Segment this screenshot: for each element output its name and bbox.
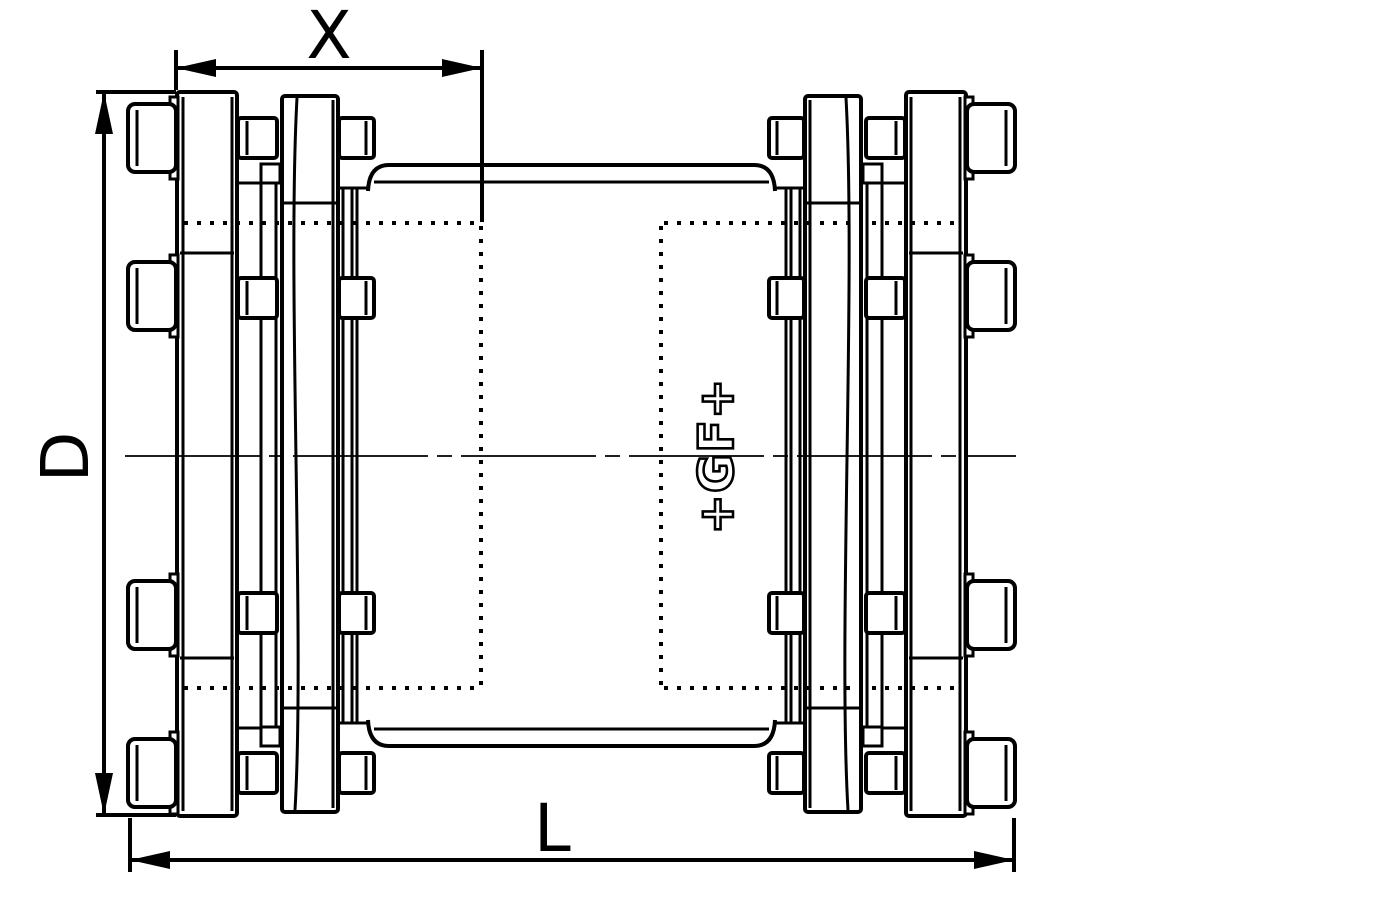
flange-assembly-right (769, 92, 1015, 816)
dimension-x-label: X (306, 0, 351, 74)
arrowhead-up (95, 92, 113, 134)
arrowhead-left (130, 851, 170, 869)
technical-drawing-canvas: X D L +GF+ (0, 0, 1400, 900)
dimension-d: D (27, 92, 176, 815)
arrowhead-down (95, 773, 113, 815)
arrowhead-right (974, 851, 1014, 869)
inner-flange (282, 96, 338, 812)
arrowhead-left (176, 59, 216, 77)
pipe-coupling-drawing: X D L +GF+ (0, 0, 1400, 900)
outer-flange (177, 92, 237, 816)
dimension-l-label: L (534, 790, 571, 867)
arrowhead-right (442, 59, 482, 77)
dimension-l: L (130, 790, 1014, 872)
dimension-d-label: D (27, 432, 104, 483)
flange-assembly-left (128, 92, 374, 816)
gasket-cylinder (238, 164, 280, 746)
